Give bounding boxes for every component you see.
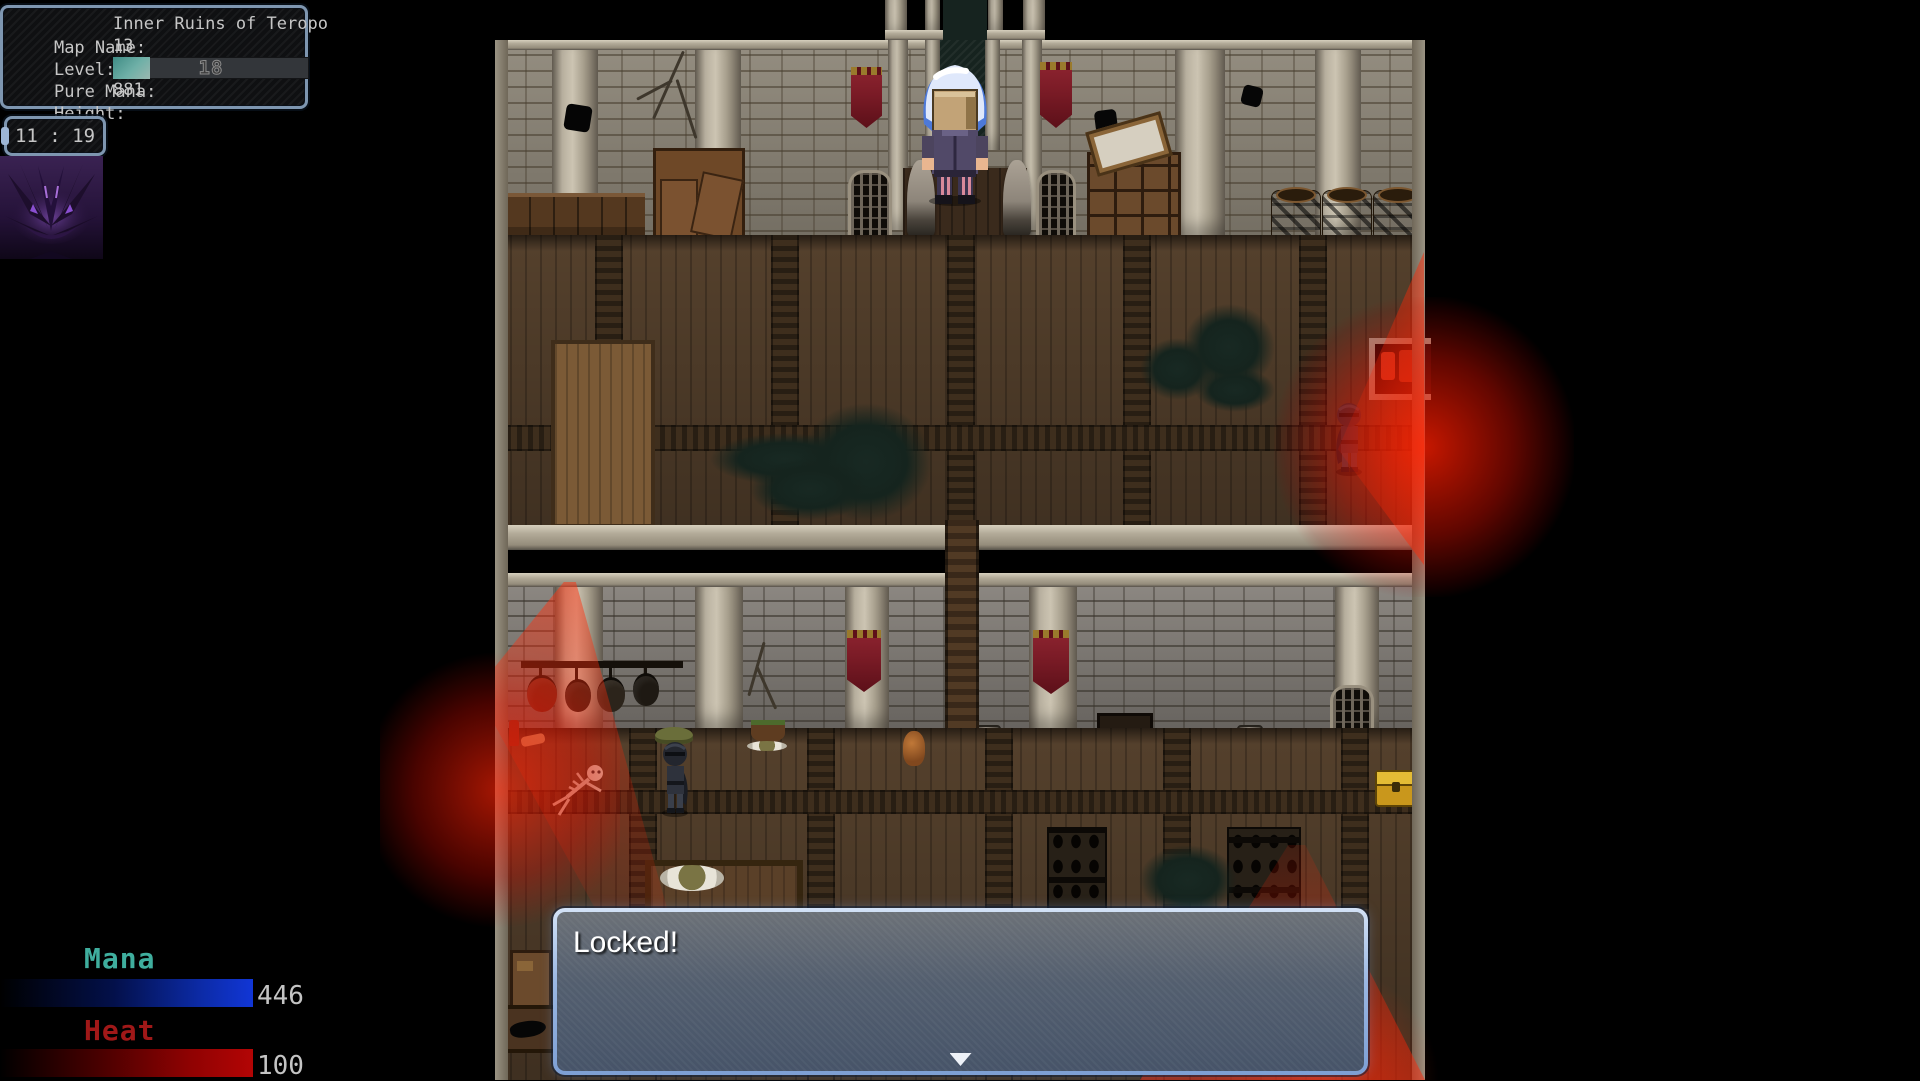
connecting-corridor xyxy=(945,520,979,728)
food-bowl xyxy=(751,720,785,742)
treasure-chest xyxy=(1375,770,1417,807)
red-banner xyxy=(847,630,881,692)
game-screen: { "hud": { "map_name_label": "Map Name:"… xyxy=(0,0,1920,1080)
clock-time: 11 : 19 xyxy=(15,125,95,147)
plate xyxy=(747,741,787,751)
heat-value: 100 xyxy=(257,1051,304,1081)
heat-bar xyxy=(0,1049,253,1077)
dark-knight-sprite xyxy=(657,741,693,817)
red-banner xyxy=(1040,62,1072,128)
wall-pillar xyxy=(695,587,743,728)
wall-pillar xyxy=(1175,50,1225,235)
red-light-glow-right xyxy=(1274,297,1574,597)
dark-passage xyxy=(943,0,987,40)
dark-stain xyxy=(1195,368,1275,412)
dark-stain xyxy=(750,458,870,520)
drawer-desk xyxy=(1087,152,1181,242)
map-name-value: Inner Ruins of Teropo xyxy=(113,12,328,36)
mana-bar xyxy=(0,979,253,1007)
amphora xyxy=(903,731,925,766)
map-info-panel: Map Name: Inner Ruins of Teropo Level: 1… xyxy=(0,5,308,109)
clock-panel: 11 : 19 xyxy=(4,116,106,156)
mana-value: 446 xyxy=(257,981,304,1011)
clock-tab xyxy=(1,127,9,145)
down-arrow-icon[interactable] xyxy=(950,1053,972,1066)
message-text: Locked! xyxy=(573,926,678,960)
cupboard xyxy=(653,148,745,242)
height-value: 881 xyxy=(113,78,144,102)
pure-mana-value: 18 xyxy=(113,57,309,79)
portcullis-gate xyxy=(848,170,892,238)
gate-pillar xyxy=(988,0,1003,34)
pure-mana-bar: 18 xyxy=(113,57,309,79)
hanging-pot xyxy=(633,673,659,706)
message-box[interactable]: Locked! xyxy=(553,908,1368,1075)
plate-of-food xyxy=(660,865,724,891)
wall-hole xyxy=(563,103,593,133)
cupboard-door-broken xyxy=(690,171,744,240)
gargoyle-statue xyxy=(1003,160,1031,235)
mana-label: Mana xyxy=(84,942,155,975)
top-gate-structure xyxy=(885,0,1045,40)
red-banner xyxy=(851,67,882,128)
floor-beam xyxy=(947,235,975,545)
level-value: 13 xyxy=(113,34,133,58)
raised-platform xyxy=(551,340,655,528)
message-box-body: Locked! xyxy=(557,912,1364,1071)
chair xyxy=(510,950,552,1012)
red-banner xyxy=(1033,630,1069,694)
long-counter xyxy=(505,193,645,241)
player-character-sprite xyxy=(916,46,994,206)
gate-pillar xyxy=(925,0,940,34)
heat-label: Heat xyxy=(84,1014,155,1047)
portcullis-gate xyxy=(1036,170,1076,238)
floor-beam xyxy=(1123,235,1151,545)
demon-portrait xyxy=(0,156,103,259)
